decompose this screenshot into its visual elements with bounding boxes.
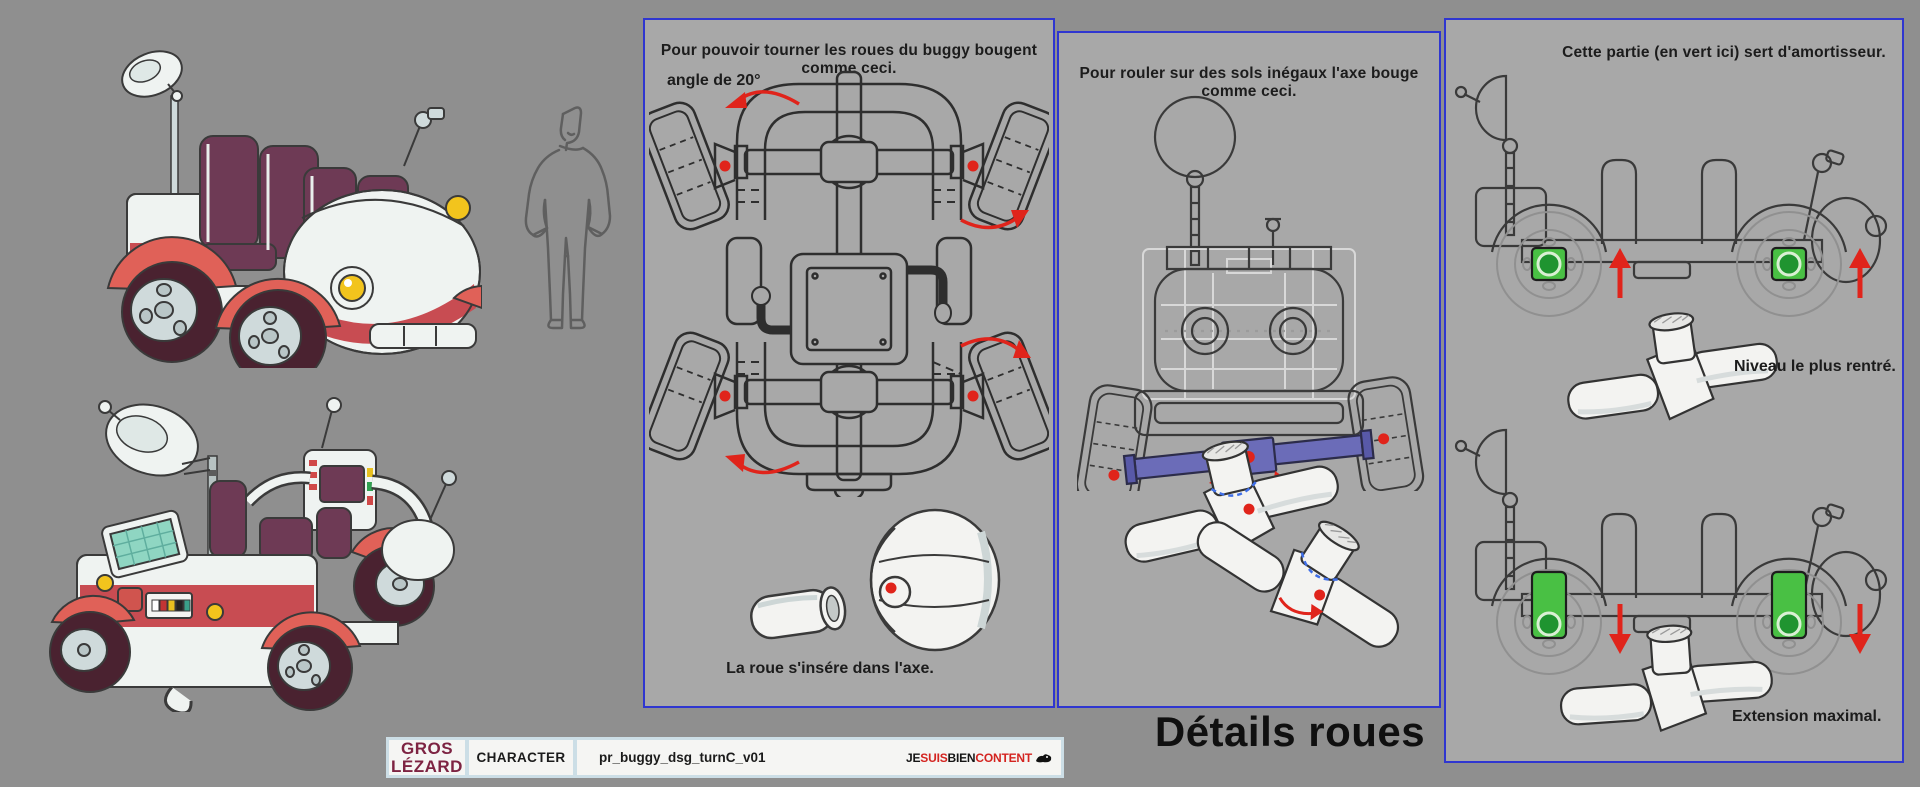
headlight	[446, 196, 470, 220]
panel-wheel-turn: Pour pouvoir tourner les roues du buggy …	[643, 18, 1055, 708]
up-arrows	[1609, 248, 1871, 298]
filename: pr_buggy_dsg_turnC_v01	[599, 750, 766, 765]
pivot-dot	[886, 583, 897, 594]
side-view-retracted-schematic	[1452, 68, 1896, 336]
front-view-schematic	[1077, 91, 1425, 491]
tow-hook	[165, 687, 191, 712]
section-title: Détails roues	[1140, 708, 1440, 756]
axle-joint-diagram	[1558, 620, 1778, 755]
mirror-icon	[1804, 504, 1844, 594]
studio-line1: GROS	[401, 740, 453, 757]
design-sheet: { "colors": { "bg_outer": "#8f8f8f", "bg…	[0, 0, 1920, 787]
axle-joint-tilted-diagram	[1187, 495, 1417, 665]
scale-figure-silhouette	[515, 98, 617, 336]
buggy-front-quarter-illustration	[52, 46, 482, 368]
antenna-icon	[322, 398, 341, 448]
logo-blob-icon	[1035, 752, 1053, 764]
shock-absorber-retracted	[1532, 248, 1806, 280]
reference-views	[0, 0, 640, 787]
category-cell: CHARACTER	[469, 740, 573, 775]
retracted-label: Niveau le plus rentré.	[1734, 358, 1896, 376]
satellite-dish-icon	[1155, 97, 1235, 265]
headlight	[339, 275, 365, 301]
panel-axle-motion: Pour rouler sur des sols inégaux l'axe b…	[1057, 31, 1441, 708]
logo-text: JESUISBIENCONTENT	[906, 751, 1032, 765]
panel-shock-absorber: Cette partie (en vert ici) sert d'amorti…	[1444, 18, 1904, 763]
studio-line2: LÉZARD	[391, 758, 463, 775]
satellite-dish-icon	[1456, 430, 1517, 589]
wheel-axle-diagram	[745, 492, 1015, 668]
filename-cell: pr_buggy_dsg_turnC_v01 JESUISBIENCONTENT	[577, 740, 1061, 775]
mirror-icon	[404, 108, 444, 166]
satellite-dish-icon	[1456, 76, 1517, 235]
panel-title: Cette partie (en vert ici) sert d'amorti…	[1556, 44, 1892, 62]
title-block: GROS LÉZARD CHARACTER pr_buggy_dsg_turnC…	[386, 737, 1064, 778]
top-view-schematic	[649, 62, 1049, 497]
extended-label: Extension maximal.	[1732, 708, 1881, 726]
satellite-dish-icon	[115, 46, 188, 200]
studio-name: GROS LÉZARD	[389, 740, 465, 775]
studio-logo: JESUISBIENCONTENT	[906, 740, 1053, 775]
mirror-icon	[430, 471, 456, 520]
panel-caption: La roue s'insére dans l'axe.	[645, 660, 1015, 678]
buggy-rear-quarter-illustration	[22, 390, 482, 712]
